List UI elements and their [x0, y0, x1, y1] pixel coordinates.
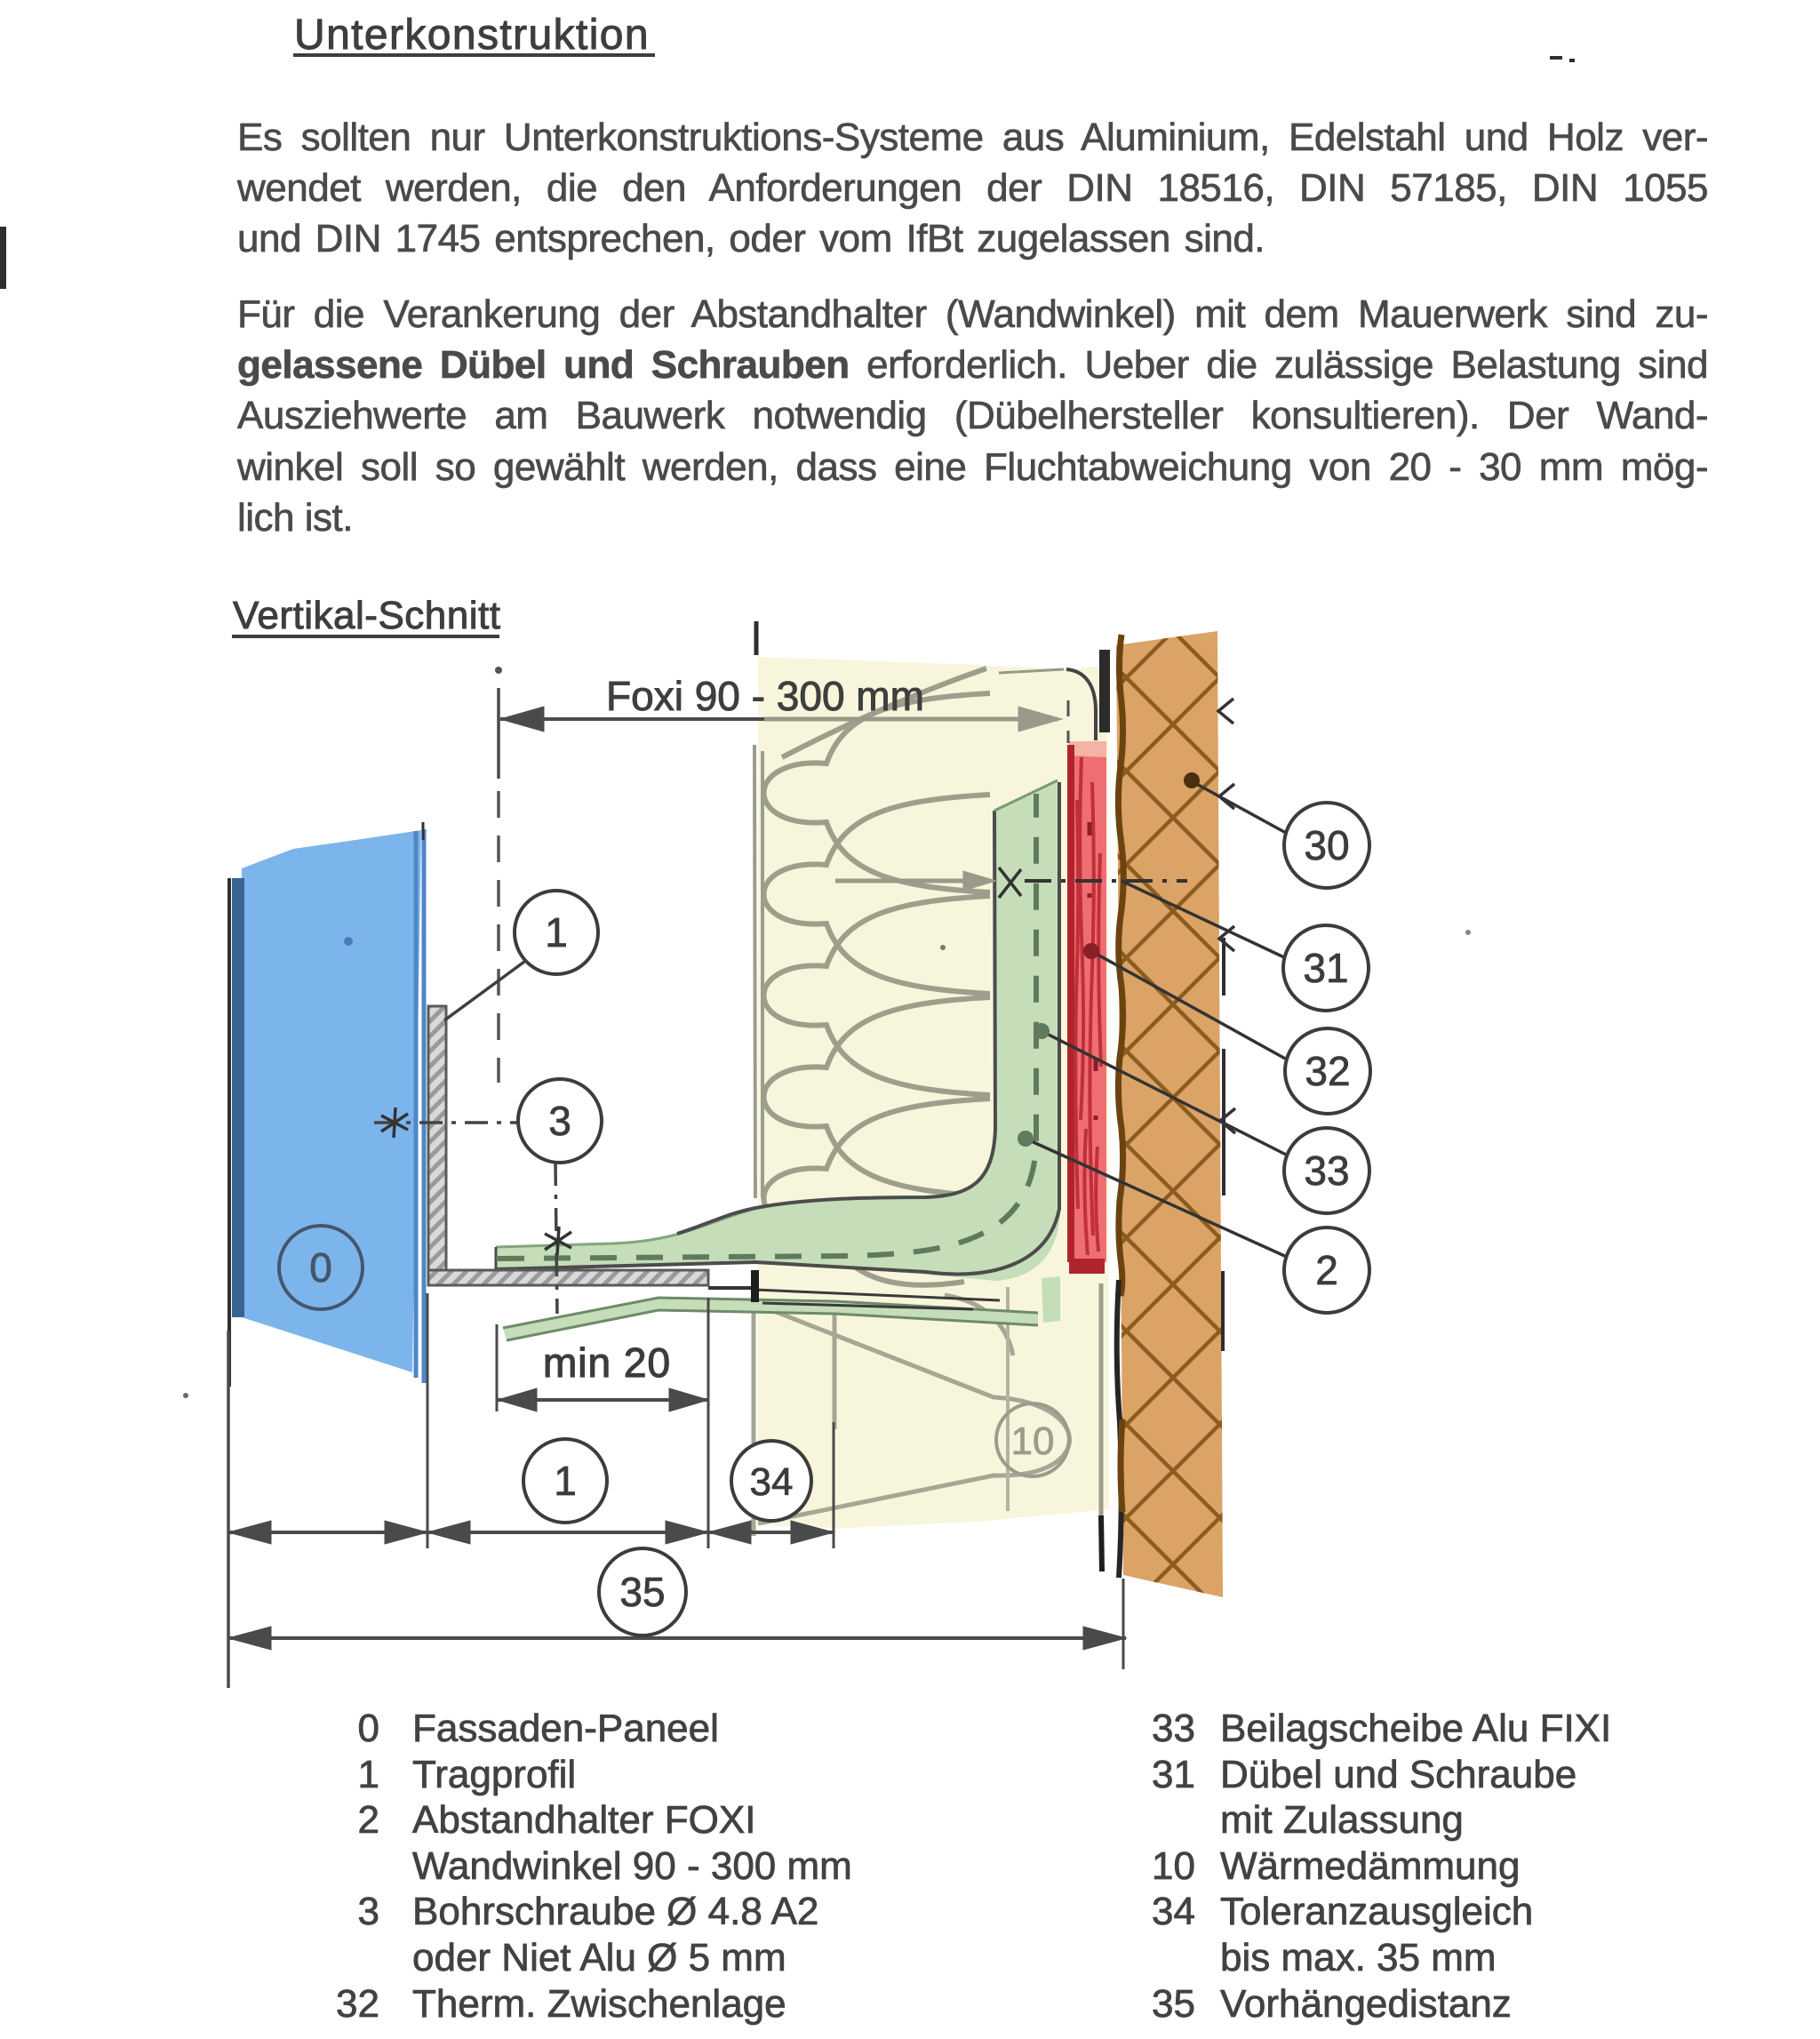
svg-text:1: 1: [554, 1458, 577, 1504]
svg-text:3: 3: [548, 1098, 571, 1144]
svg-text:10: 10: [1011, 1419, 1055, 1463]
svg-text:0: 0: [309, 1244, 332, 1291]
svg-text:34: 34: [750, 1460, 794, 1504]
svg-text:Foxi 90 - 300 mm: Foxi 90 - 300 mm: [606, 673, 924, 719]
svg-text:32: 32: [1305, 1048, 1350, 1094]
svg-text:31: 31: [1303, 945, 1348, 991]
svg-text:35: 35: [619, 1569, 665, 1615]
svg-text:2: 2: [1315, 1247, 1338, 1293]
svg-text:min 20: min 20: [543, 1339, 671, 1386]
svg-text:1: 1: [545, 909, 568, 956]
svg-text:33: 33: [1304, 1147, 1349, 1194]
svg-text:30: 30: [1304, 822, 1349, 868]
